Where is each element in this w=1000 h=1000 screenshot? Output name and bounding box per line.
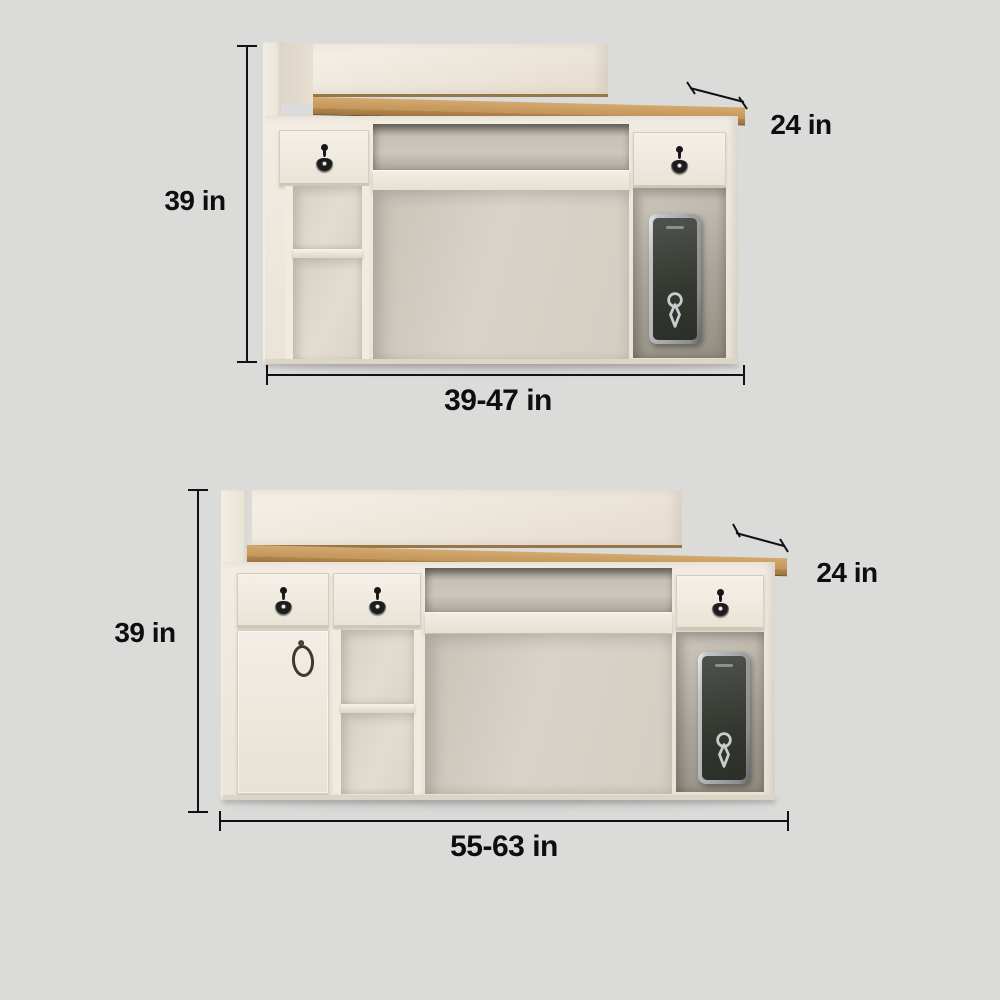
middle-drawer — [333, 573, 421, 628]
safe-brand-mark — [666, 226, 684, 229]
keyhole-icon — [280, 587, 287, 594]
drawer-lockset — [712, 589, 729, 627]
keyhole-icon — [374, 587, 381, 594]
device-compartment — [633, 188, 726, 358]
height-label-bottom: 39 in — [90, 618, 200, 649]
drawer-lockset — [275, 587, 292, 625]
left-drawer — [279, 130, 369, 186]
keyboard-tray — [373, 170, 629, 191]
safe-front-face — [653, 218, 697, 340]
raised-back-counter — [252, 490, 682, 548]
height-label-top: 39 in — [140, 186, 250, 217]
drawer-lockset — [671, 146, 688, 185]
shelf-compartment — [341, 630, 414, 704]
desk-body — [265, 116, 738, 364]
open-shelf-unit — [285, 186, 369, 362]
shelf-compartment — [293, 186, 362, 249]
height-dimension-line-bottom — [197, 490, 199, 812]
open-cubby-slot — [425, 568, 672, 612]
keyhole-icon — [717, 589, 724, 596]
width-dimension-line-top — [267, 374, 744, 376]
drawer-lockset — [316, 144, 333, 183]
open-shelf-unit — [333, 630, 421, 794]
keyboard-tray — [425, 612, 672, 633]
desk-left-return-panel — [281, 43, 313, 103]
knee-space — [425, 634, 672, 794]
device-compartment — [676, 632, 764, 792]
width-label-top: 39-47 in — [398, 384, 598, 417]
depth-label-bottom: 24 in — [792, 558, 902, 589]
desk-body — [223, 562, 775, 800]
drawer-pull-icon — [671, 160, 688, 174]
drawer-pull-icon — [316, 158, 333, 172]
knee-space — [373, 190, 629, 362]
right-drawer — [633, 132, 726, 188]
drawer-pull-icon — [369, 601, 386, 615]
safe-brand-mark — [715, 664, 733, 667]
cash-safe-device — [698, 652, 750, 784]
safe-front-face — [702, 656, 746, 780]
safe-keyhole-emblem — [713, 730, 735, 770]
raised-back-counter — [313, 44, 608, 97]
cabinet-door — [237, 630, 329, 794]
left-drawer — [237, 573, 329, 628]
cash-safe-device — [649, 214, 701, 344]
reception-desk-large — [207, 487, 785, 803]
keyhole-icon — [676, 146, 683, 153]
width-dimension-line-bottom — [220, 820, 788, 822]
keyhole-icon — [321, 144, 328, 151]
open-cubby-slot — [373, 124, 629, 170]
depth-label-top: 24 in — [746, 110, 856, 141]
shelf-compartment — [341, 713, 414, 794]
shelf-board — [341, 704, 414, 713]
right-drawer — [676, 575, 764, 630]
drawer-pull-icon — [275, 601, 292, 615]
width-label-bottom: 55-63 in — [404, 830, 604, 863]
product-dimensions-image: 39 in 39-47 in 24 in — [0, 0, 1000, 1000]
drawer-pull-icon — [712, 603, 729, 617]
door-ring-handle-icon — [290, 644, 315, 678]
shelf-board — [293, 249, 362, 258]
reception-desk-small — [263, 40, 745, 367]
drawer-lockset — [369, 587, 386, 625]
safe-keyhole-emblem — [664, 290, 686, 330]
shelf-compartment — [293, 258, 362, 362]
